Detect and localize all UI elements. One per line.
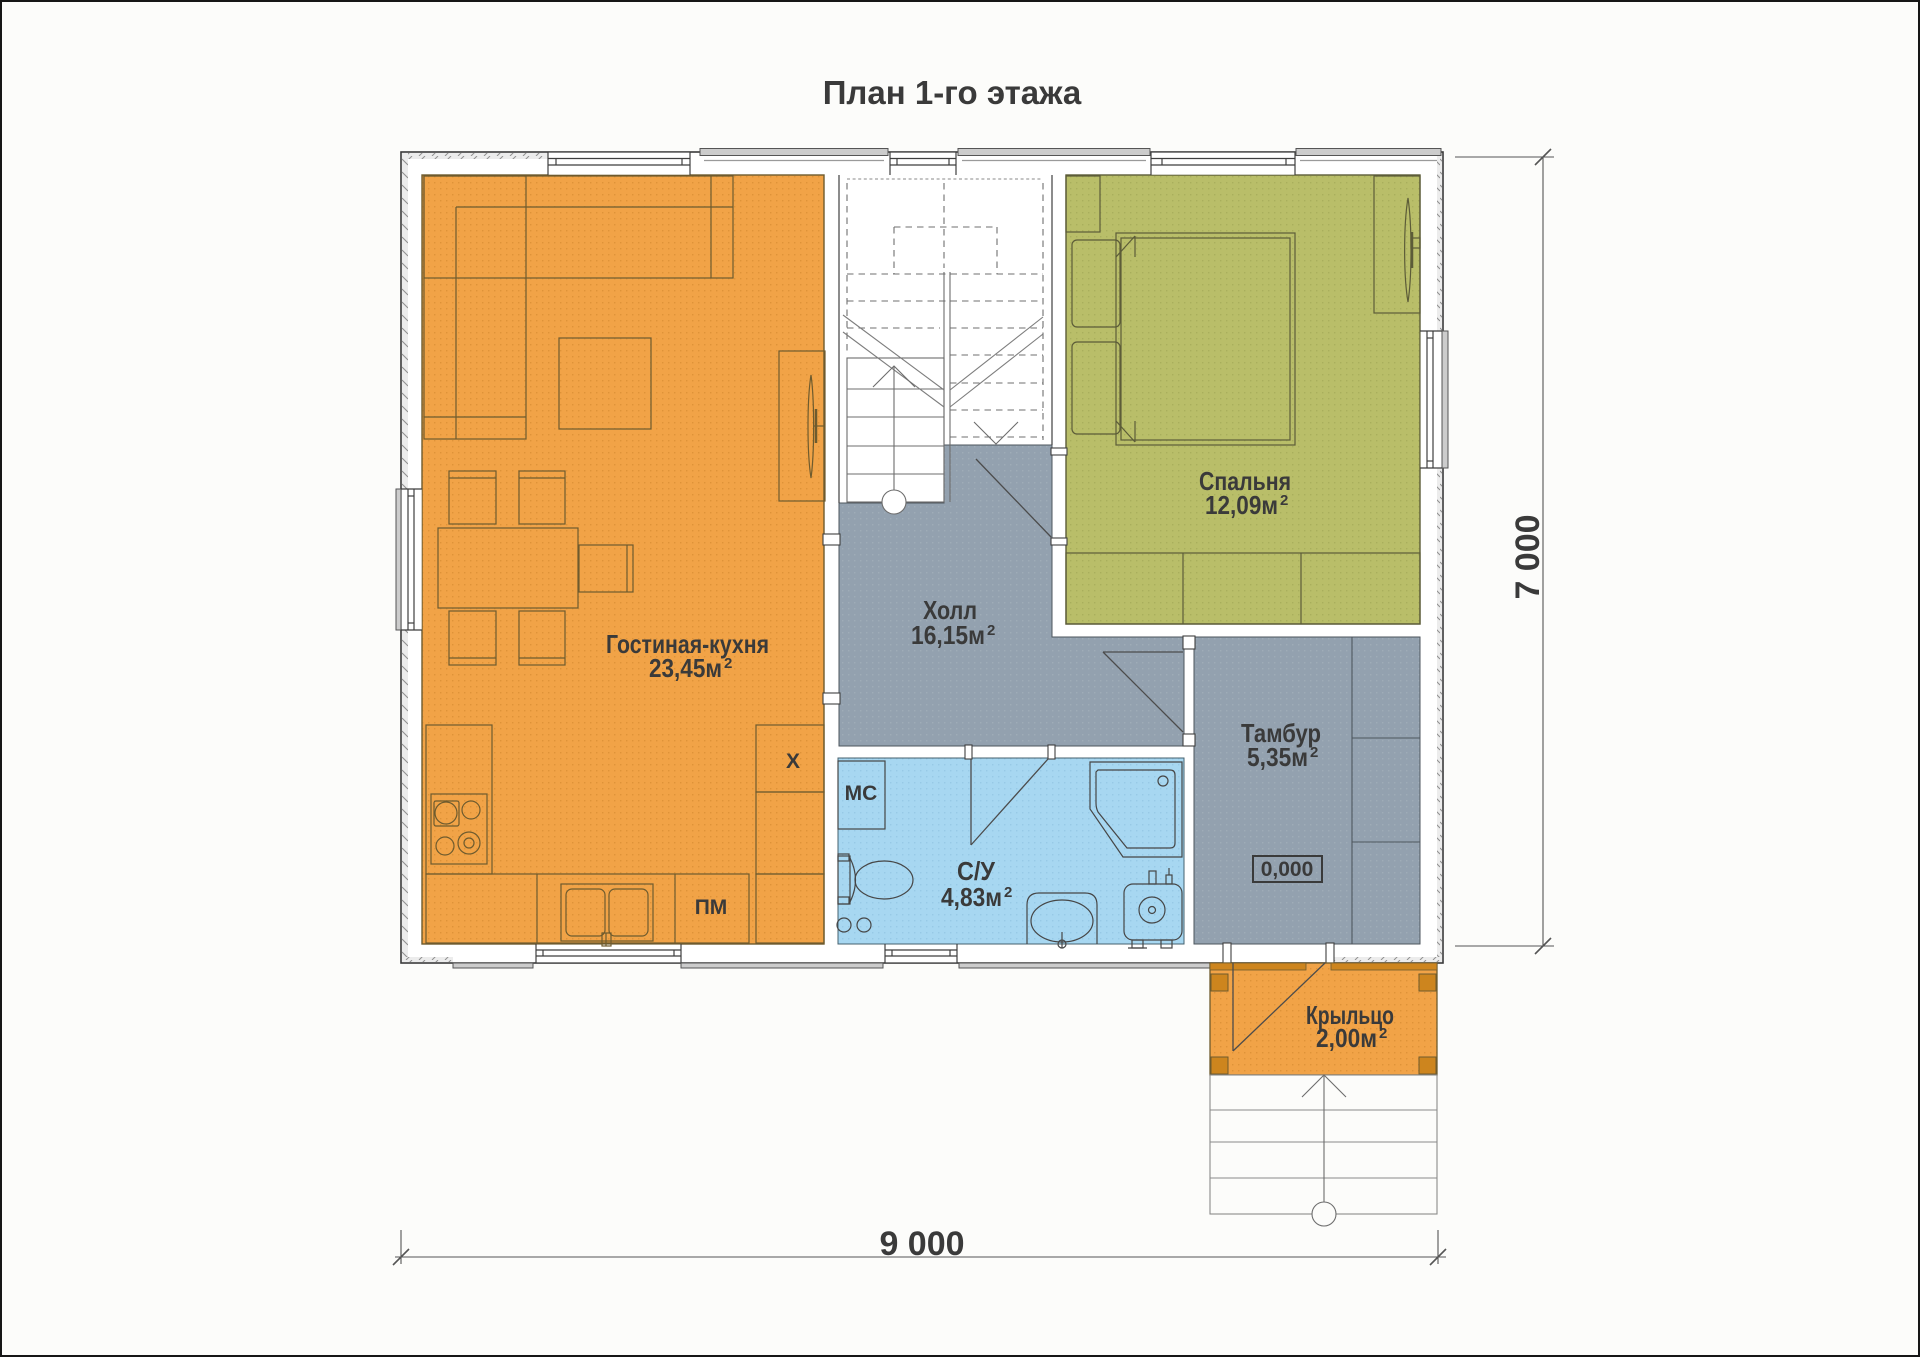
- svg-text:0,000: 0,000: [1261, 858, 1314, 881]
- svg-text:2: 2: [1310, 744, 1318, 761]
- svg-text:МС: МС: [845, 782, 878, 805]
- svg-text:9 000: 9 000: [879, 1225, 964, 1263]
- svg-text:4,83м: 4,83м: [941, 882, 1002, 912]
- svg-text:Х: Х: [786, 750, 800, 773]
- svg-text:2: 2: [987, 622, 995, 639]
- svg-text:2: 2: [724, 655, 732, 672]
- svg-text:2: 2: [1379, 1025, 1387, 1042]
- svg-text:План 1-го этажа: План 1-го этажа: [823, 74, 1082, 111]
- svg-text:7 000: 7 000: [1509, 514, 1547, 599]
- svg-text:2: 2: [1280, 492, 1288, 509]
- svg-text:2,00м: 2,00м: [1316, 1023, 1377, 1053]
- svg-text:23,45м: 23,45м: [649, 653, 722, 683]
- svg-text:5,35м: 5,35м: [1247, 742, 1308, 772]
- svg-text:2: 2: [1004, 884, 1012, 901]
- svg-text:ПМ: ПМ: [695, 896, 728, 919]
- svg-text:12,09м: 12,09м: [1205, 490, 1278, 520]
- svg-text:16,15м: 16,15м: [911, 620, 985, 650]
